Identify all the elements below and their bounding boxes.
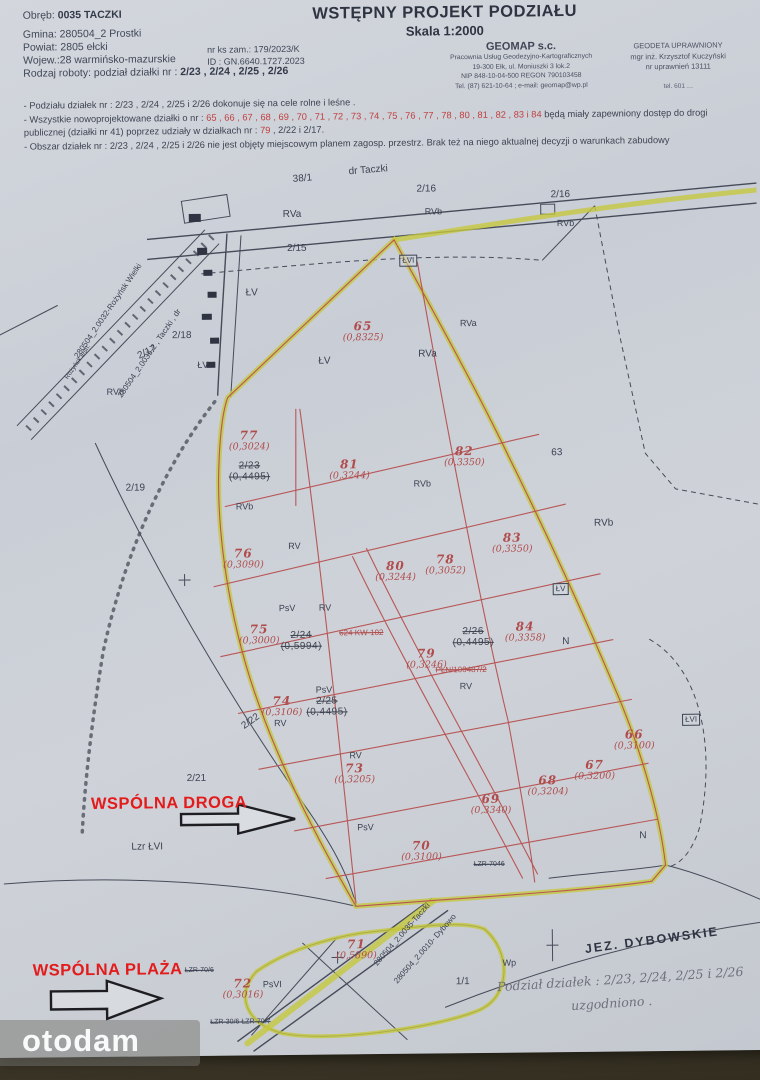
watermark-strip: otodam [0, 1020, 200, 1066]
parcel-label: 80(0,3244) [375, 560, 416, 583]
parcel-label: 82(0,3350) [444, 445, 485, 468]
note-2-text: - Wszystkie nowoprojektowane działki o n… [24, 113, 207, 125]
map-label: 2/15 [287, 244, 307, 254]
map-label: RVb [414, 479, 431, 488]
parcel-label: 78(0,3052) [425, 553, 466, 576]
paper-sheet: Obręb: 0035 TACZKI Gmina: 280504_2 Prost… [0, 0, 760, 1058]
map-label: ŁVI [399, 255, 417, 267]
map-label: RV [460, 682, 472, 691]
old-parcel-label: 2/24(0,5994) [281, 631, 322, 652]
firm-block: GEOMAP s.c. Pracownia Usług Geodezyjno-K… [423, 39, 620, 91]
photo-background: Obręb: 0035 TACZKI Gmina: 280504_2 Prost… [0, 0, 760, 1080]
document-scale: Skala 1:2000 [265, 21, 625, 40]
id-number: ID : GN.6640.1727.2023 [207, 55, 305, 68]
old-parcel-label: 2/25(0,4495) [306, 696, 347, 717]
map-drawing [0, 0, 760, 1080]
map-label: RVa [418, 349, 437, 359]
map-label: 1/1 [456, 977, 470, 987]
map-label: PsV [316, 686, 333, 695]
map-label: RV [349, 751, 361, 760]
rodzaj-label: Rodzaj roboty: podział działki nr : [23, 66, 180, 80]
map-label: RV [274, 719, 286, 728]
surveyor-line4: tel. 601 … [607, 81, 749, 93]
map-label: 63 [551, 448, 562, 458]
map-label: N [562, 637, 569, 647]
document-title: WSTĘPNY PROJEKT PODZIAŁU [265, 1, 625, 24]
parcel-label: 68(0,3204) [527, 774, 568, 797]
map-label: ŁV [553, 583, 569, 595]
parcel-label: 69(0,3340) [471, 793, 512, 816]
parcel-label: 77(0,3024) [229, 429, 270, 452]
map-label: ŁZR-70/6 [185, 967, 214, 974]
nr-zam: nr ks zam.: 179/2023/K [207, 43, 305, 56]
map-label: N [639, 831, 646, 841]
common-road-label: WSPÓLNA DROGA [91, 793, 247, 814]
map-label: 2/16 [551, 190, 571, 200]
black-linework [0, 183, 760, 1054]
parcel-label: 73(0,3205) [334, 762, 375, 785]
map-label: PsVI [263, 980, 282, 989]
parcel-label: 83(0,3350) [492, 531, 533, 554]
map-label: 2/19 [126, 483, 146, 493]
map-label: 280504_2.0035-2 , Taczki , dr [117, 308, 183, 399]
map-label: RV [319, 604, 331, 613]
plan-content: Obręb: 0035 TACZKI Gmina: 280504_2 Prost… [0, 0, 760, 1080]
parcel-label: 65(0,8325) [343, 320, 384, 343]
map-label: 2/16 [416, 184, 436, 194]
map-label: dr Taczki [348, 164, 388, 177]
note-2-red-parcels: 65 , 66 , 67 , 68 , 69 , 70 , 71 , 72 , … [206, 109, 542, 123]
common-beach-arrow [51, 980, 161, 1019]
map-label: PsV [279, 604, 296, 613]
firm-line4: Tel. (87) 621-10-64 ; e-mail: geomap@wp.… [423, 80, 619, 92]
common-beach-label: WSPÓLNA PLAŻA [33, 960, 183, 981]
old-parcel-label: 2/26(0,4495) [452, 627, 493, 648]
map-label: 624 KW-102 [339, 629, 383, 637]
map-label: ŁVI [682, 714, 700, 726]
notes-block: - Podziału działek nr : 2/23 , 2/24 , 2/… [24, 92, 737, 154]
note-2-text3: , 2/22 i 2/17. [270, 125, 324, 136]
map-label: 2/22 [240, 712, 262, 731]
parcel-label: 74(0,3106) [261, 695, 302, 718]
map-label: 2/18 [172, 331, 192, 341]
map-label: RVb [236, 502, 253, 511]
parcel-label: 84(0,3358) [505, 620, 546, 643]
old-parcel-label: 2/23(0,4495) [229, 461, 270, 482]
parcel-label: 79(0,3246) [406, 647, 447, 670]
surveyor-line3: nr uprawnień 13111 [607, 61, 749, 73]
map-label: 38/1 [292, 173, 312, 185]
parcel-label: 72(0,3016) [222, 977, 263, 1000]
map-label: PsV [357, 823, 374, 832]
note-2-red-road: 79 [260, 125, 270, 135]
map-label: Lzr ŁVI [131, 842, 163, 852]
map-label: RVb [425, 207, 442, 216]
map-label: RVb [594, 519, 613, 529]
parcel-label: 70(0,3100) [401, 839, 442, 862]
parcel-label: 67(0,3200) [574, 759, 615, 782]
lake-label: JEZ. DYBOWSKIE [584, 924, 720, 956]
map-label: 280504_2.0010- Dybowo [393, 913, 458, 985]
watermark-text: otodam [22, 1023, 140, 1059]
map-label: Wp [503, 959, 517, 968]
map-label: ŁZR-7046 [474, 861, 505, 868]
map-label: RVa [283, 210, 302, 220]
map-label: ŁV [318, 357, 330, 367]
building-marks [189, 214, 220, 368]
obreb-label: Obręb: [23, 9, 58, 21]
order-numbers: nr ks zam.: 179/2023/K ID : GN.6640.1727… [207, 43, 305, 68]
handwritten-note-line2: uzgodniono . [571, 993, 653, 1013]
parcel-label: 81(0,3244) [329, 458, 370, 481]
map-label: RV [288, 542, 300, 551]
map-label: ŁV [246, 288, 258, 298]
parcel-label: 71(0,5890) [336, 938, 377, 961]
map-label: ŁV [197, 361, 208, 370]
map-label: RVa [460, 319, 477, 328]
obreb-value: 0035 TACZKI [58, 9, 122, 22]
parcel-label: 76(0,3090) [223, 547, 264, 570]
parcel-label: 75(0,3000) [239, 623, 280, 646]
map-label: 2/21 [187, 774, 207, 784]
map-label: ŁZR-30/6 ŁZR-70/7 [210, 1018, 270, 1026]
surveyor-block: GEODETA UPRAWNIONY mgr inż. Krzysztof Ku… [607, 40, 750, 92]
map-label: RVb [557, 219, 574, 228]
yellow-highlight [216, 190, 760, 1044]
parcel-label: 66(0,3100) [614, 728, 655, 751]
handwritten-note-line1: Podział działek : 2/23, 2/24, 2/25 i 2/2… [497, 964, 744, 994]
